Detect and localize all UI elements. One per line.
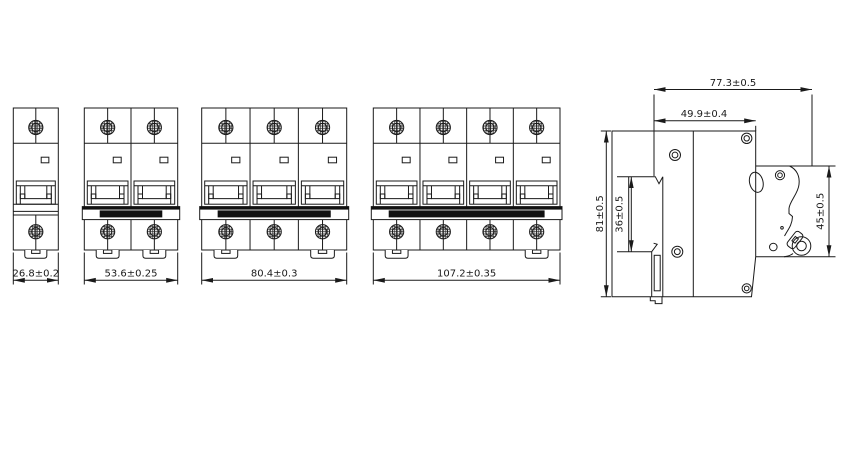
width-dimension-label: 26.8±0.2: [13, 268, 60, 279]
breaker-side-view: 77.3±0.5 49.9±0.4 81±0.5 36±0.5: [595, 78, 836, 304]
terminal-screw: [483, 225, 497, 239]
terminal-screw: [390, 225, 404, 239]
rivet: [672, 246, 683, 257]
screw-hole: [770, 243, 778, 251]
toggle-handle: [205, 181, 247, 204]
rivet: [742, 133, 752, 143]
terminal-screw: [530, 225, 544, 239]
front-face-contour: [785, 166, 800, 236]
dimension-label: 36±0.5: [614, 196, 625, 233]
din-rail-clip-tab: [143, 250, 166, 258]
dimension-overall-height: 81±0.5: [595, 131, 611, 297]
label-window: [542, 157, 550, 163]
label-window: [402, 157, 410, 163]
terminal-screw: [147, 120, 161, 134]
terminal-screw: [530, 120, 544, 134]
terminal-screw: [29, 120, 43, 134]
toggle-handle: [470, 181, 511, 204]
case-seam: [13, 204, 58, 215]
dimension-label: 45±0.5: [816, 193, 827, 230]
label-window: [280, 157, 288, 163]
label-window: [232, 157, 240, 163]
dimension-front-height: 45±0.5: [816, 166, 830, 257]
label-window: [328, 157, 336, 163]
side-body-outline: [612, 131, 756, 297]
toggle-handle: [376, 181, 417, 204]
din-rail-clip-tab: [525, 250, 548, 258]
toggle-handle: [253, 181, 295, 204]
label-window: [496, 157, 504, 163]
toggle-handle: [16, 181, 55, 204]
terminal-screw: [147, 225, 161, 239]
width-dimension-label: 53.6±0.25: [105, 268, 158, 279]
din-rail-clip-tab: [385, 250, 408, 258]
label-window: [41, 157, 49, 163]
toggle-handle: [87, 181, 128, 204]
terminal-screw: [436, 120, 450, 134]
terminal-screw: [101, 120, 115, 134]
rivet: [742, 284, 751, 293]
terminal-screw: [483, 120, 497, 134]
label-window: [449, 157, 457, 163]
pin-dot: [781, 227, 784, 230]
terminal-screw: [315, 225, 329, 239]
handle-tie-bar: [371, 207, 562, 220]
terminal-screw: [101, 225, 115, 239]
terminal-screw: [29, 225, 43, 239]
dimension-label: 77.3±0.5: [710, 78, 757, 89]
din-rail-clip-tab: [25, 250, 47, 258]
rivet: [775, 171, 784, 180]
label-window: [160, 157, 168, 163]
din-rail-recess: [617, 177, 663, 297]
din-rail-clip-tab: [96, 250, 119, 258]
toggle-handle: [301, 181, 343, 204]
terminal-screw: [219, 225, 233, 239]
dimension-overall-depth: 77.3±0.5: [654, 78, 812, 176]
width-dimension-label: 80.4±0.3: [251, 268, 298, 279]
width-dimension-label: 107.2±0.35: [437, 268, 496, 279]
padlock-slot: [747, 171, 765, 194]
dimension-upper-depth: 49.9±0.4: [654, 109, 756, 131]
terminal-screw: [267, 225, 281, 239]
label-window: [113, 157, 121, 163]
breaker-front-view-1-pole: 26.8±0.2: [13, 108, 60, 285]
rivet: [670, 150, 681, 161]
din-rail-clip-foot: [650, 297, 662, 304]
toggle-pivot-inner: [797, 241, 807, 251]
dimension-label: 49.9±0.4: [681, 109, 728, 120]
toggle-handle: [516, 181, 557, 204]
handle-tie-bar: [200, 207, 349, 220]
terminal-screw: [390, 120, 404, 134]
din-rail-clip-tab: [311, 250, 335, 258]
breaker-front-view-2-pole: 53.6±0.25: [82, 108, 179, 285]
terminal-screw: [436, 225, 450, 239]
terminal-screw: [267, 120, 281, 134]
dimension-label: 81±0.5: [595, 195, 606, 232]
din-rail-clip: [654, 255, 660, 290]
terminal-screw: [219, 120, 233, 134]
breaker-dimension-drawing: 26.8±0.253.6±0.2580.4±0.3107.2±0.35: [0, 0, 858, 451]
handle-tie-bar: [82, 207, 179, 220]
terminal-screw: [315, 120, 329, 134]
front-views-layer: 26.8±0.253.6±0.2580.4±0.3107.2±0.35: [13, 108, 562, 285]
din-rail-clip-tab: [214, 250, 238, 258]
breaker-front-view-3-pole: 80.4±0.3: [200, 108, 349, 285]
drawing-canvas: 26.8±0.253.6±0.2580.4±0.3107.2±0.35: [0, 0, 858, 451]
breaker-front-view-4-pole: 107.2±0.35: [371, 108, 562, 285]
toggle-handle: [134, 181, 175, 204]
toggle-handle: [423, 181, 464, 204]
